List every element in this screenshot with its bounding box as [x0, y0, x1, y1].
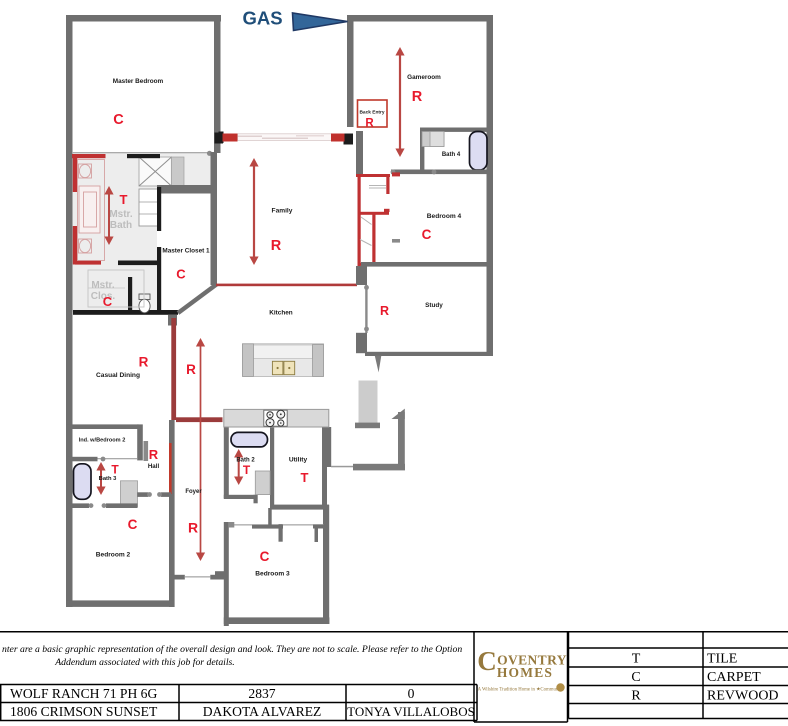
- svg-text:R: R: [365, 118, 374, 130]
- svg-text:R: R: [380, 304, 389, 318]
- svg-text:R: R: [271, 238, 282, 254]
- svg-text:HOMES: HOMES: [497, 665, 553, 680]
- svg-text:CARPET: CARPET: [707, 670, 761, 685]
- svg-text:Back Entry: Back Entry: [359, 110, 384, 116]
- svg-text:Master Bedroom: Master Bedroom: [113, 78, 164, 85]
- svg-text:T: T: [111, 463, 119, 477]
- svg-text:R: R: [412, 89, 423, 105]
- svg-text:R: R: [631, 689, 641, 704]
- svg-text:C: C: [113, 112, 124, 128]
- svg-text:C: C: [477, 646, 497, 676]
- svg-text:Family: Family: [272, 208, 293, 215]
- svg-text:R: R: [186, 362, 196, 377]
- svg-text:Bedroom 4: Bedroom 4: [427, 213, 462, 220]
- svg-text:Bath 3: Bath 3: [99, 476, 117, 482]
- svg-text:Hall: Hall: [148, 463, 160, 470]
- svg-text:2837: 2837: [248, 686, 275, 701]
- svg-text:T: T: [301, 470, 309, 485]
- svg-text:T: T: [243, 463, 251, 477]
- svg-text:Addendum associated with this: Addendum associated with this job for de…: [54, 657, 234, 668]
- svg-text:C: C: [176, 267, 186, 282]
- svg-text:WOLF RANCH 71 PH 6G: WOLF RANCH 71 PH 6G: [10, 686, 157, 701]
- svg-text:T: T: [120, 192, 128, 207]
- svg-text:Mstr.: Mstr.: [91, 280, 115, 291]
- svg-text:TILE: TILE: [707, 652, 737, 667]
- svg-text:1806 CRIMSON SUNSET: 1806 CRIMSON SUNSET: [10, 704, 158, 719]
- svg-text:C: C: [128, 517, 138, 532]
- svg-text:Casual Dining: Casual Dining: [96, 372, 140, 379]
- svg-text:Bath: Bath: [110, 220, 132, 231]
- svg-text:GAS: GAS: [242, 8, 282, 29]
- svg-text:C: C: [260, 549, 270, 564]
- svg-text:Mstr.: Mstr.: [109, 209, 133, 220]
- svg-text:Bedroom 2: Bedroom 2: [96, 552, 131, 559]
- svg-text:Ind. w/Bedroom 2: Ind. w/Bedroom 2: [79, 438, 126, 444]
- svg-text:R: R: [188, 520, 198, 536]
- svg-text:C: C: [422, 227, 432, 242]
- svg-text:Study: Study: [425, 302, 443, 309]
- svg-text:Gameroom: Gameroom: [407, 74, 441, 81]
- svg-text:R: R: [149, 447, 159, 462]
- svg-text:DAKOTA ALVAREZ: DAKOTA ALVAREZ: [203, 704, 322, 719]
- svg-text:Bedroom 3: Bedroom 3: [255, 571, 290, 578]
- svg-text:Master Closet 1: Master Closet 1: [162, 248, 210, 255]
- svg-text:0: 0: [408, 686, 415, 701]
- svg-text:Foyer: Foyer: [185, 489, 202, 495]
- svg-text:T: T: [632, 652, 641, 667]
- svg-text:A Wilshire Tradition Home in ★: A Wilshire Tradition Home in ★Community: [478, 687, 564, 693]
- svg-text:Utility: Utility: [289, 457, 308, 464]
- svg-text:nter are a basic graphic repre: nter are a basic graphic representation …: [2, 644, 462, 655]
- svg-text:REVWOOD: REVWOOD: [707, 689, 779, 704]
- svg-text:Bath 4: Bath 4: [442, 152, 461, 158]
- svg-text:TONYA VILLALOBOS: TONYA VILLALOBOS: [347, 704, 475, 719]
- svg-text:C: C: [103, 294, 113, 309]
- svg-text:C: C: [631, 670, 640, 685]
- svg-text:Kitchen: Kitchen: [269, 310, 293, 317]
- svg-text:R: R: [139, 355, 149, 370]
